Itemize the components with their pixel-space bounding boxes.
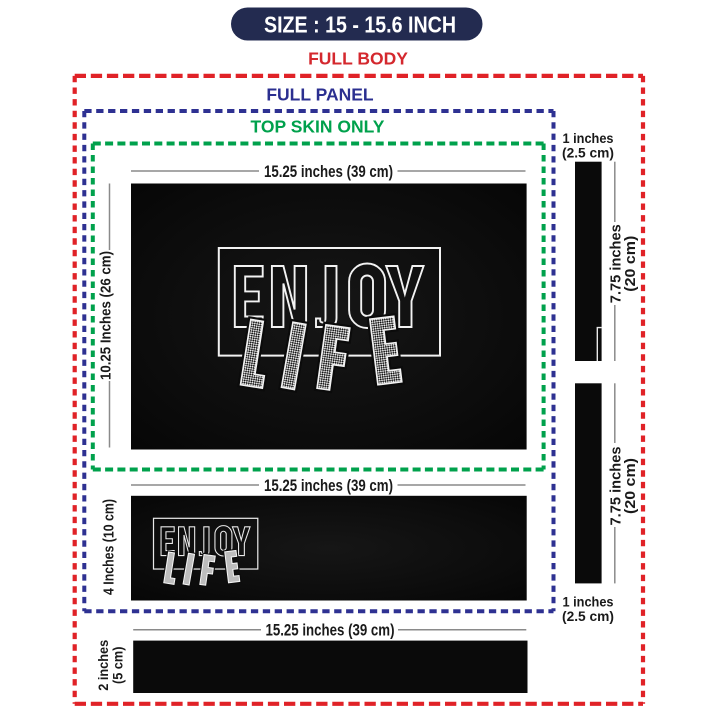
svg-text:2 inches: 2 inches <box>96 640 111 691</box>
svg-text:15.25 inches (39 cm): 15.25 inches (39 cm) <box>264 476 393 495</box>
svg-text:(20 cm): (20 cm) <box>623 236 639 292</box>
svg-text:FULL PANEL: FULL PANEL <box>266 84 374 104</box>
svg-text:TOP SKIN ONLY: TOP SKIN ONLY <box>251 117 385 137</box>
svg-text:15.25 inches (39 cm): 15.25 inches (39 cm) <box>264 162 393 181</box>
svg-text:(2.5 cm): (2.5 cm) <box>562 608 614 624</box>
svg-text:SIZE : 15 - 15.6 INCH: SIZE : 15 - 15.6 INCH <box>264 11 456 37</box>
svg-text:(2.5 cm): (2.5 cm) <box>562 145 614 161</box>
svg-text:(20 cm): (20 cm) <box>623 458 639 514</box>
svg-text:(5 cm): (5 cm) <box>111 647 126 685</box>
svg-text:4 Inches (10 cm): 4 Inches (10 cm) <box>101 499 118 595</box>
svg-text:15.25 inches (39 cm): 15.25 inches (39 cm) <box>266 621 395 640</box>
svg-text:FULL BODY: FULL BODY <box>308 49 408 69</box>
svg-text:10.25 Inches (26 cm): 10.25 Inches (26 cm) <box>98 251 115 380</box>
